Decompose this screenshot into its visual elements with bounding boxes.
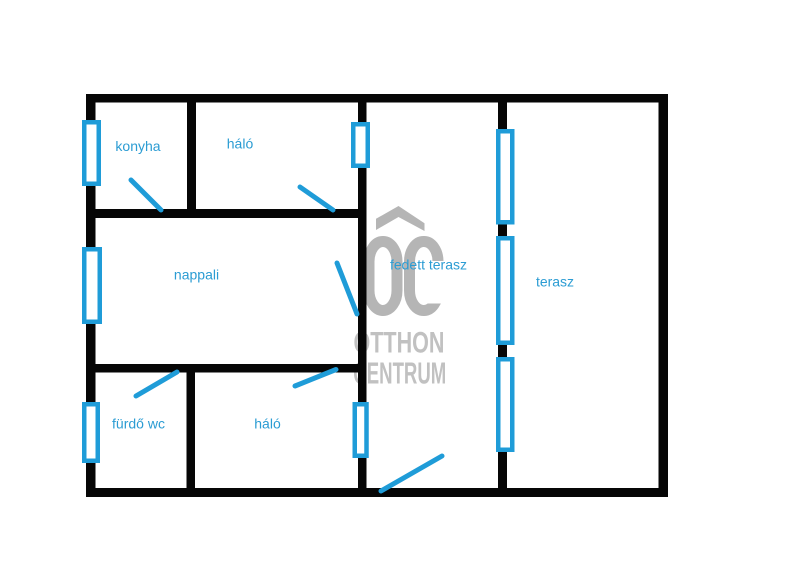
svg-text:fedett terasz: fedett terasz (390, 257, 467, 273)
svg-text:háló: háló (254, 416, 281, 432)
svg-text:fürdő wc: fürdő wc (112, 416, 165, 432)
svg-text:nappali: nappali (174, 267, 219, 283)
svg-text:CENTRUM: CENTRUM (353, 357, 446, 391)
svg-text:OTTHON: OTTHON (354, 327, 445, 360)
svg-text:terasz: terasz (536, 274, 574, 290)
svg-text:háló: háló (227, 136, 254, 152)
svg-text:konyha: konyha (115, 138, 160, 154)
